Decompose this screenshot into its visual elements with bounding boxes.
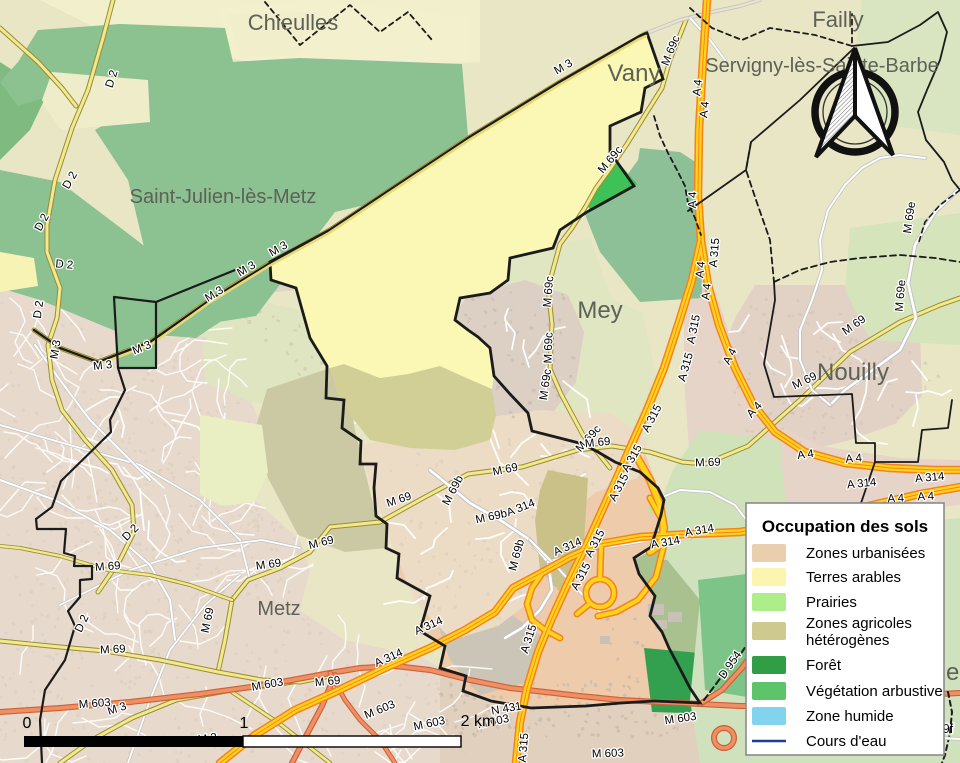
svg-text:A 4: A 4 (698, 100, 712, 118)
svg-text:Metz: Metz (257, 598, 300, 620)
svg-text:Failly: Failly (812, 7, 863, 32)
svg-text:Zones urbanisées: Zones urbanisées (806, 545, 925, 562)
svg-text:M 69: M 69 (95, 560, 121, 574)
svg-text:Forêt: Forêt (806, 657, 842, 674)
svg-text:A 4: A 4 (797, 448, 816, 462)
svg-text:D 2: D 2 (32, 300, 46, 319)
svg-text:Chieulles: Chieulles (248, 10, 339, 35)
svg-text:A 4: A 4 (917, 491, 935, 504)
svg-text:A 4: A 4 (845, 452, 863, 465)
svg-text:Mey: Mey (577, 297, 622, 324)
svg-text:A 315: A 315 (517, 733, 532, 763)
svg-text:A 4: A 4 (700, 282, 714, 300)
svg-text:A 4: A 4 (694, 260, 708, 278)
svg-text:M 69: M 69 (695, 457, 721, 470)
svg-text:Servigny-lès-Sainte-Barbe: Servigny-lès-Sainte-Barbe (705, 55, 938, 77)
svg-text:1: 1 (240, 715, 249, 732)
svg-text:A 4: A 4 (687, 191, 700, 209)
svg-text:Terres arables: Terres arables (806, 569, 901, 586)
svg-text:M 3: M 3 (93, 359, 113, 373)
svg-text:Occupation des sols: Occupation des sols (762, 517, 928, 536)
svg-text:M 603: M 603 (592, 747, 624, 760)
svg-text:Vany: Vany (608, 60, 661, 87)
svg-text:Prairies: Prairies (806, 594, 857, 611)
svg-text:2 km: 2 km (461, 713, 496, 730)
svg-text:hétérogènes: hétérogènes (806, 632, 889, 649)
svg-text:Nouilly: Nouilly (817, 359, 889, 386)
svg-text:Zones agricoles: Zones agricoles (806, 615, 912, 632)
svg-text:Végétation arbustive: Végétation arbustive (806, 683, 943, 700)
svg-text:M 69: M 69 (100, 643, 126, 656)
svg-text:Zone humide: Zone humide (806, 708, 894, 725)
svg-text:M 69c: M 69c (542, 332, 555, 364)
svg-text:A 4: A 4 (691, 78, 705, 96)
svg-text:M 603: M 603 (78, 697, 111, 711)
svg-text:Cours d'eau: Cours d'eau (806, 733, 886, 750)
svg-text:D 2: D 2 (55, 258, 74, 272)
svg-text:A 315: A 315 (708, 238, 723, 268)
svg-text:0: 0 (23, 715, 32, 732)
svg-text:Saint-Julien-lès-Metz: Saint-Julien-lès-Metz (130, 186, 317, 208)
